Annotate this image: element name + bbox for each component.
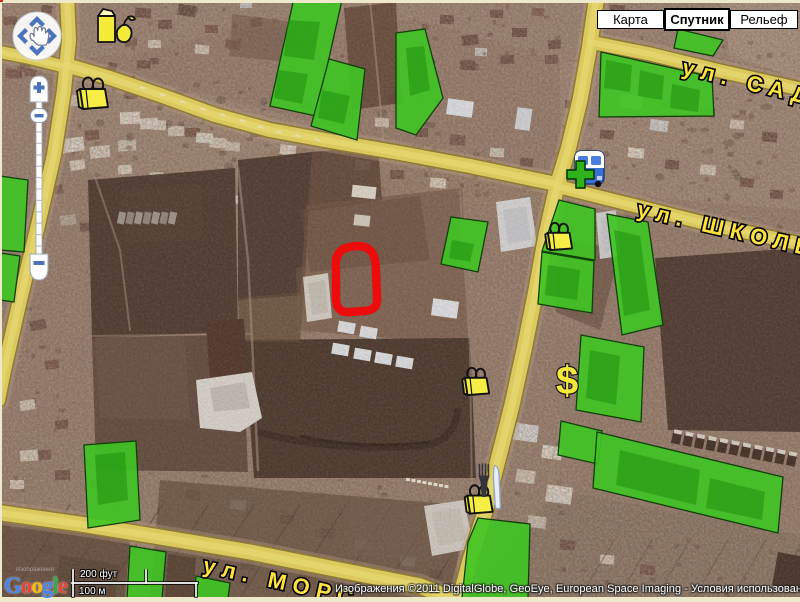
svg-text:$: $: [556, 359, 578, 403]
